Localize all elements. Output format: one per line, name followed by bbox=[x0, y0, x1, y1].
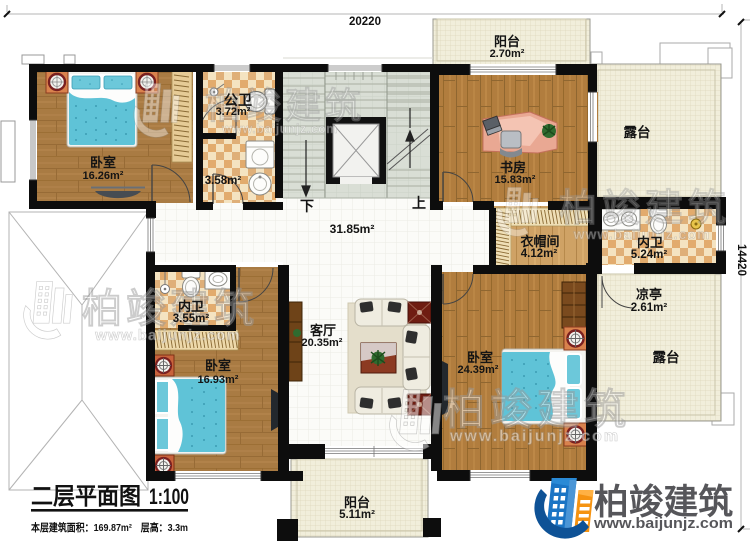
svg-text:4.12m²: 4.12m² bbox=[521, 248, 558, 260]
svg-text:31.85m²: 31.85m² bbox=[330, 222, 375, 236]
svg-text:上: 上 bbox=[412, 195, 426, 211]
svg-text:3.58m²: 3.58m² bbox=[205, 175, 242, 187]
svg-text:本层建筑面积：169.87m² 层高：3.3m: 本层建筑面积：169.87m² 层高：3.3m bbox=[31, 521, 188, 534]
svg-text:24.39m²: 24.39m² bbox=[458, 364, 499, 376]
svg-text:阳台: 阳台 bbox=[494, 34, 520, 49]
svg-text:下: 下 bbox=[300, 198, 314, 214]
svg-text:16.26m²: 16.26m² bbox=[83, 170, 124, 182]
svg-text:3.55m²: 3.55m² bbox=[173, 313, 210, 325]
svg-text:5.24m²: 5.24m² bbox=[631, 249, 668, 261]
svg-text:二层平面图: 二层平面图 bbox=[31, 483, 141, 509]
svg-text:衣帽间: 衣帽间 bbox=[520, 234, 559, 249]
svg-text:卧室: 卧室 bbox=[467, 350, 493, 365]
svg-text:20.35m²: 20.35m² bbox=[302, 337, 343, 349]
svg-text:凉亭: 凉亭 bbox=[636, 287, 662, 302]
svg-text:阳台: 阳台 bbox=[344, 495, 370, 510]
svg-text:www.baijunjz.com: www.baijunjz.com bbox=[593, 516, 733, 532]
svg-text:20220: 20220 bbox=[349, 16, 381, 28]
svg-text:3.72m²: 3.72m² bbox=[216, 106, 251, 118]
svg-text:www.baijunjz.com: www.baijunjz.com bbox=[94, 327, 240, 344]
svg-text:露台: 露台 bbox=[624, 124, 651, 140]
svg-text:柏竣建筑: 柏竣建筑 bbox=[443, 386, 631, 433]
svg-text:2.70m²: 2.70m² bbox=[490, 48, 525, 60]
svg-text:卧室: 卧室 bbox=[205, 358, 231, 373]
svg-text:5.11m²: 5.11m² bbox=[339, 509, 375, 521]
svg-text:www.baijunjz.com: www.baijunjz.com bbox=[449, 428, 620, 445]
svg-text:2.61m²: 2.61m² bbox=[631, 302, 668, 314]
svg-text:卧室: 卧室 bbox=[90, 155, 116, 170]
svg-text:1:100: 1:100 bbox=[149, 484, 189, 509]
svg-text:内卫: 内卫 bbox=[637, 235, 663, 250]
svg-text:14420: 14420 bbox=[735, 244, 747, 276]
svg-text:16.93m²: 16.93m² bbox=[198, 374, 239, 386]
svg-text:内卫: 内卫 bbox=[178, 299, 204, 314]
svg-text:露台: 露台 bbox=[653, 349, 680, 365]
svg-text:柏竣建筑: 柏竣建筑 bbox=[82, 287, 258, 331]
svg-text:柏竣建筑: 柏竣建筑 bbox=[559, 188, 731, 230]
svg-text:书房: 书房 bbox=[500, 160, 526, 175]
svg-text:www.baijunjz.com: www.baijunjz.com bbox=[221, 122, 338, 136]
svg-text:客厅: 客厅 bbox=[310, 323, 336, 338]
svg-text:15.83m²: 15.83m² bbox=[495, 174, 536, 186]
